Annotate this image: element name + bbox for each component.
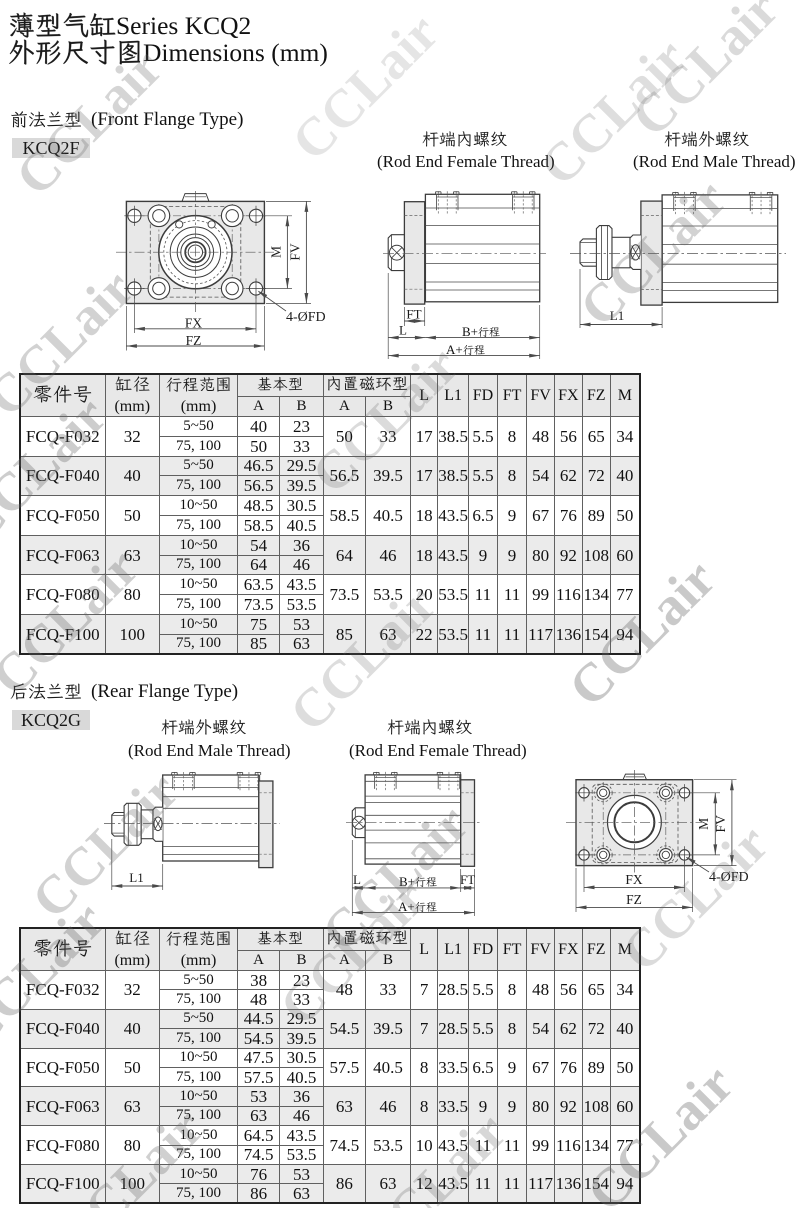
svg-text:4-ØFD: 4-ØFD	[286, 310, 326, 325]
svg-text:FT: FT	[406, 307, 421, 322]
svg-text:4-ØFD: 4-ØFD	[709, 870, 749, 885]
svg-text:FV: FV	[713, 815, 728, 833]
svg-text:FZ: FZ	[626, 892, 642, 907]
svg-text:L1: L1	[610, 308, 624, 323]
svg-text:M: M	[269, 246, 284, 258]
svg-text:M: M	[696, 818, 711, 830]
svg-text:FV: FV	[288, 243, 303, 261]
svg-text:FZ: FZ	[186, 333, 202, 348]
svg-text:L: L	[353, 872, 361, 887]
svg-text:FX: FX	[185, 315, 203, 330]
svg-text:FX: FX	[625, 872, 643, 887]
svg-text:FT: FT	[460, 872, 475, 887]
svg-text:L: L	[399, 323, 407, 338]
svg-text:L1: L1	[129, 870, 143, 885]
